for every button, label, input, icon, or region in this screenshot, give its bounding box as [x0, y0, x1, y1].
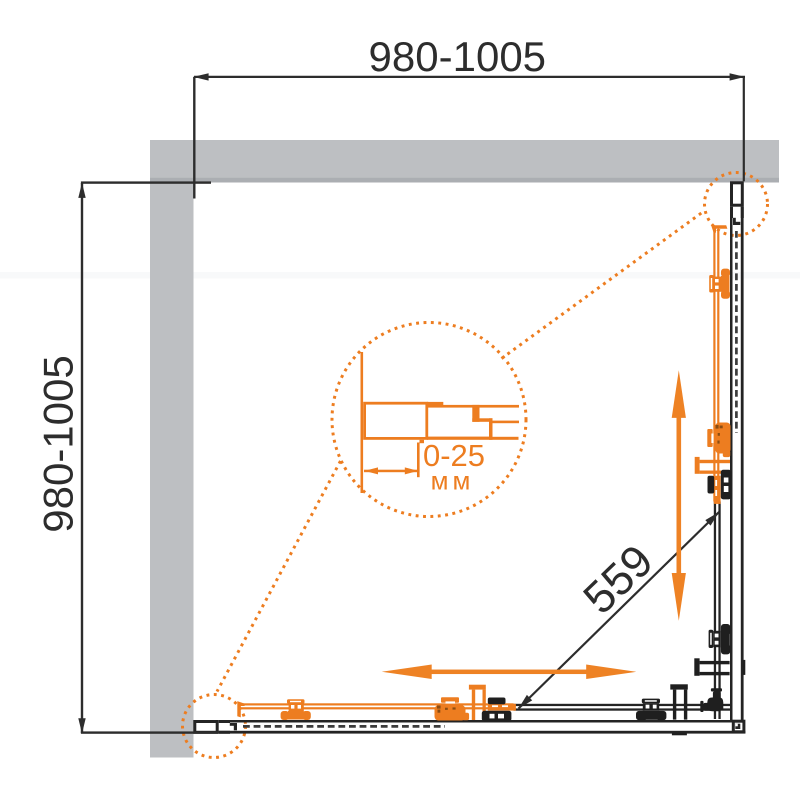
svg-text:980-1005: 980-1005 [34, 355, 81, 533]
svg-text:980-1005: 980-1005 [369, 33, 547, 80]
svg-text:мм: мм [431, 466, 475, 496]
